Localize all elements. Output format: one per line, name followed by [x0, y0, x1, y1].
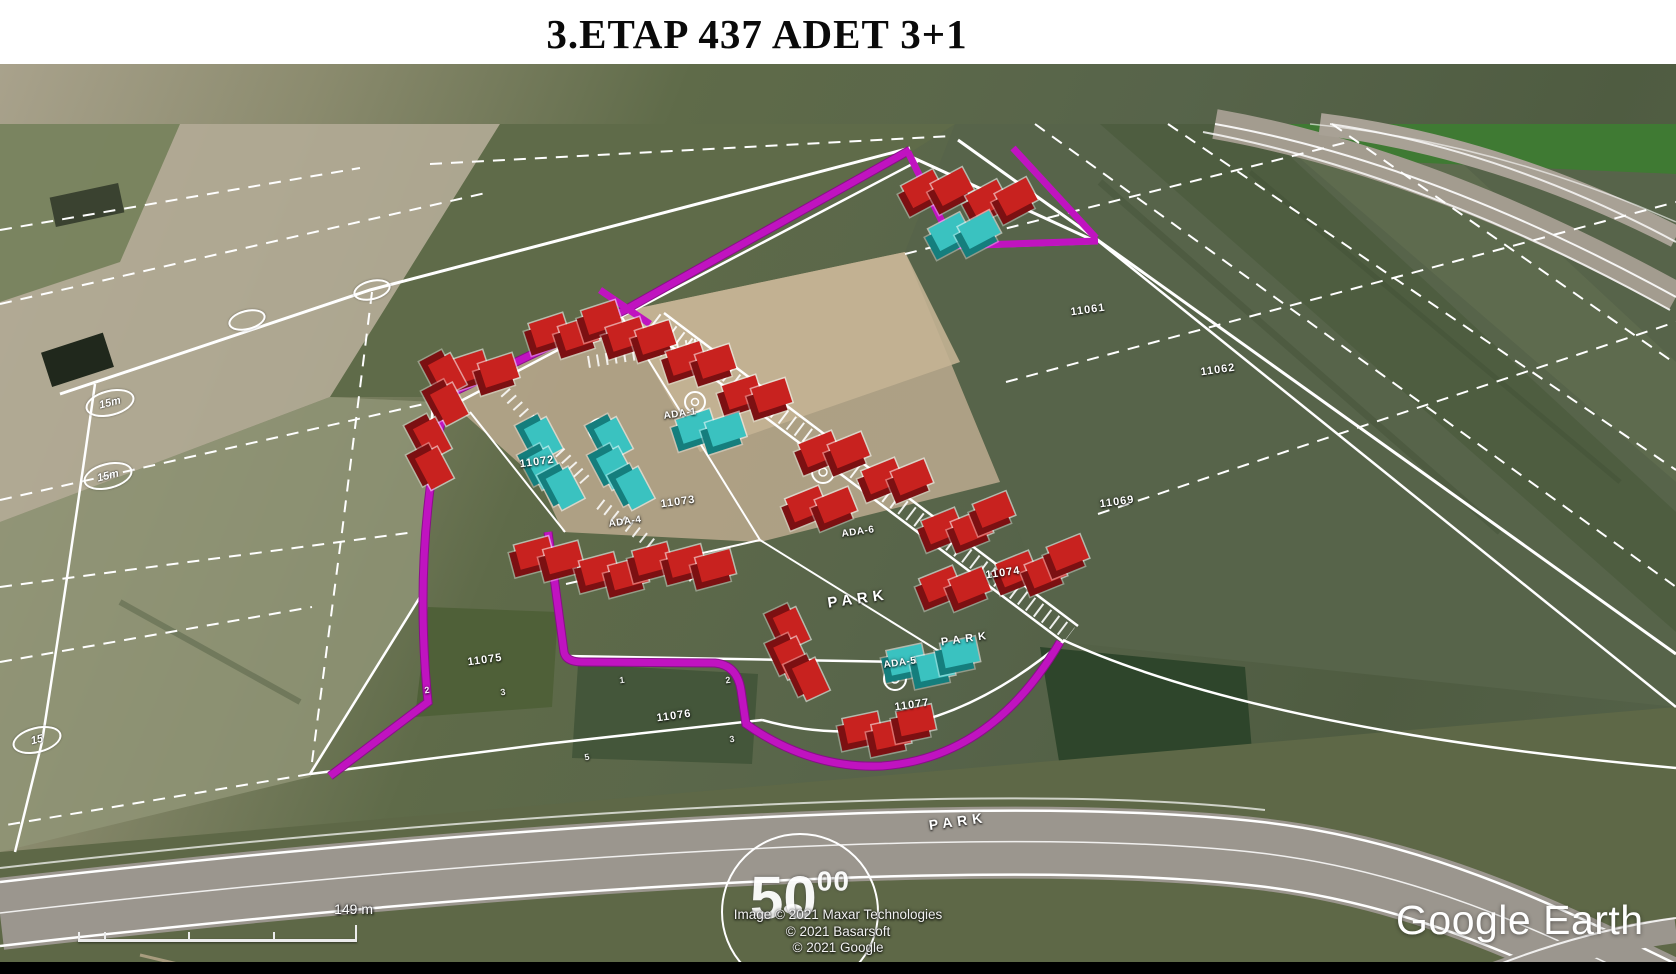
- red-apartment-block: [759, 607, 831, 700]
- google-earth-logo: Google Earth: [1396, 897, 1644, 944]
- parcel-number-label: 11069: [1099, 494, 1135, 511]
- park-label: PARK: [928, 809, 988, 833]
- map-overlay-graphics: [0, 62, 1676, 974]
- ada-block-label: ADA-1: [663, 406, 697, 421]
- red-apartment-block: [514, 524, 605, 584]
- road-network: [0, 124, 1676, 974]
- red-apartment-block: [606, 302, 698, 366]
- red-apartment-block: [722, 360, 814, 424]
- park-label: PARK: [940, 630, 992, 649]
- lot-number-label: 3: [729, 734, 735, 745]
- road-width-ellipse-marker: 15: [10, 721, 65, 758]
- red-apartment-block: [786, 468, 879, 537]
- attribution-line-2: © 2021 Basarsoft: [734, 924, 943, 941]
- map-labels-layer: 1106111062110691107211073110741107511076…: [0, 62, 1676, 974]
- highway-interchange: [1203, 124, 1676, 310]
- ada-block-label: ADA-4: [608, 514, 642, 529]
- scale-bar-line: [78, 939, 357, 942]
- ada-block-label: ADA-5: [883, 655, 917, 670]
- attribution-line-1: Image © 2021 Maxar Technologies: [734, 907, 943, 924]
- parcel-number-label: 11062: [1200, 362, 1236, 379]
- teal-apartment-block: [887, 634, 977, 691]
- road-width-ellipse-marker: 15m: [83, 384, 138, 421]
- road-width-ellipse-marker: [226, 306, 268, 335]
- scale-bar-label: 149 m: [334, 901, 373, 917]
- magenta-roads: [330, 150, 1060, 776]
- red-apartment-block: [666, 532, 757, 592]
- park-label: PARK: [826, 586, 889, 611]
- google-earth-screenshot: 1106111062110691107211073110741107511076…: [0, 0, 1676, 974]
- parcel-number-label: 11076: [656, 708, 692, 725]
- parcel-number-label: 11061: [1070, 302, 1106, 319]
- teal-apartment-block: [581, 418, 656, 511]
- red-apartment-block: [862, 440, 955, 509]
- red-apartment-block: [579, 540, 670, 600]
- building-models-layer: [0, 62, 1676, 974]
- red-apartment-block: [902, 147, 995, 222]
- red-apartment-block: [415, 354, 490, 447]
- lot-number-label: 1: [619, 675, 625, 686]
- road-width-ellipse-marker: 15m: [81, 457, 136, 494]
- lot-number-label: 3: [500, 687, 506, 698]
- parcel-number-label: 11074: [985, 565, 1021, 582]
- teal-apartment-block: [929, 190, 1022, 265]
- ada-block-label: ADA-6: [841, 524, 875, 539]
- teal-apartment-block: [511, 418, 586, 511]
- red-apartment-block: [922, 490, 1015, 559]
- red-apartment-block: [966, 157, 1059, 232]
- title-banner: 3.ETAP 437 ADET 3+1: [0, 0, 1676, 64]
- red-apartment-block: [400, 418, 475, 511]
- parcel-number-label: 11073: [660, 494, 696, 511]
- teal-apartment-block: [676, 394, 768, 458]
- attribution-line-3: © 2021 Google: [734, 940, 943, 957]
- red-apartment-block: [666, 326, 758, 390]
- magenta-roads-top: [330, 148, 1098, 776]
- scale-bar: 149 m: [78, 901, 357, 947]
- parcel-number-label: 11075: [467, 652, 503, 669]
- parcel-number-label: 11072: [519, 454, 555, 471]
- lot-number-label: 2: [424, 685, 430, 696]
- red-apartment-block: [799, 413, 892, 482]
- field-patches: [0, 124, 1676, 974]
- map-attribution: Image © 2021 Maxar Technologies © 2021 B…: [734, 907, 943, 957]
- page-title: 3.ETAP 437 ADET 3+1: [546, 10, 967, 58]
- lot-number-label: 5: [584, 752, 590, 763]
- red-apartment-block: [920, 548, 1013, 617]
- red-apartment-block: [843, 702, 933, 759]
- lot-number-label: 2: [725, 675, 731, 686]
- road-width-50-sup: 00: [817, 866, 850, 897]
- red-apartment-block: [529, 298, 621, 362]
- road-width-ellipse-marker: [351, 276, 393, 305]
- red-apartment-block: [449, 335, 541, 399]
- bottom-black-strip: [0, 962, 1676, 974]
- red-apartment-block: [996, 533, 1089, 602]
- satellite-map-viewport[interactable]: 1106111062110691107211073110741107511076…: [0, 62, 1676, 962]
- parcel-number-label: 11077: [894, 697, 930, 714]
